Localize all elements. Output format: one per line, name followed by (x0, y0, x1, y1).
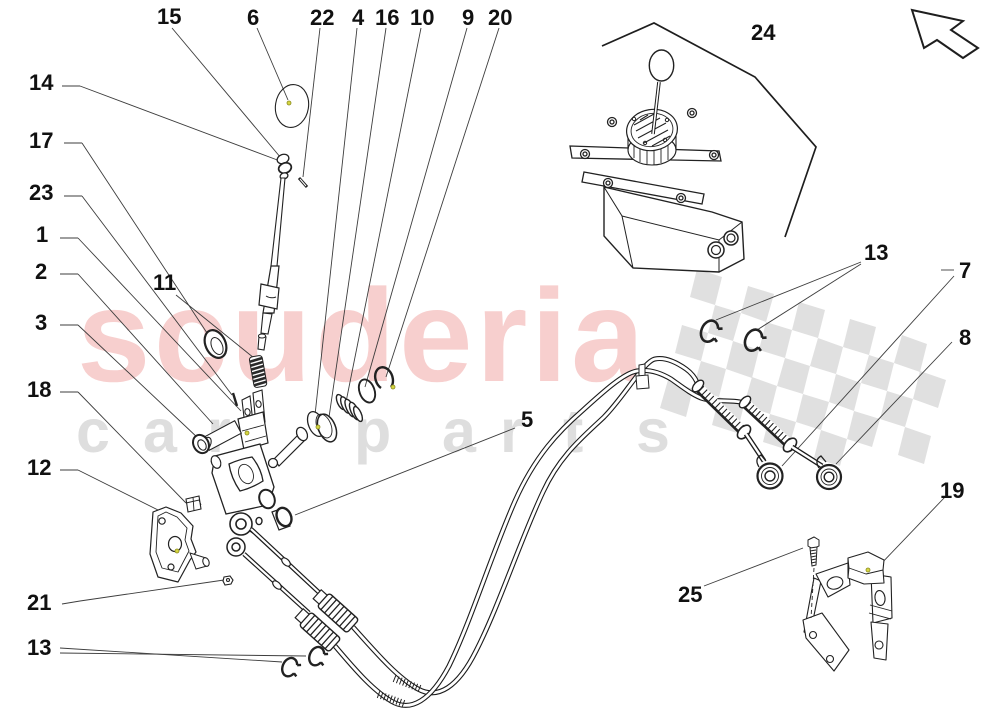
svg-text:1: 1 (36, 222, 48, 247)
svg-text:9: 9 (462, 5, 474, 30)
svg-text:16: 16 (375, 5, 399, 30)
svg-text:2: 2 (35, 259, 47, 284)
svg-text:14: 14 (29, 70, 54, 95)
svg-text:24: 24 (751, 20, 776, 45)
svg-text:19: 19 (940, 478, 964, 503)
svg-text:18: 18 (27, 377, 51, 402)
svg-text:12: 12 (27, 455, 51, 480)
svg-text:car: car (76, 397, 231, 465)
svg-text:10: 10 (410, 5, 434, 30)
svg-text:15: 15 (157, 4, 181, 29)
svg-text:20: 20 (488, 5, 512, 30)
svg-text:5: 5 (521, 407, 533, 432)
svg-text:4: 4 (352, 5, 365, 30)
svg-text:17: 17 (29, 128, 53, 153)
svg-text:23: 23 (29, 180, 53, 205)
svg-text:13: 13 (27, 635, 51, 660)
svg-text:3: 3 (35, 310, 47, 335)
svg-text:7: 7 (959, 258, 971, 283)
svg-text:11: 11 (153, 270, 176, 295)
svg-text:25: 25 (678, 582, 702, 607)
svg-text:8: 8 (959, 325, 971, 350)
svg-text:21: 21 (27, 590, 51, 615)
svg-text:6: 6 (247, 5, 259, 30)
svg-text:22: 22 (310, 5, 334, 30)
svg-text:13: 13 (864, 240, 888, 265)
